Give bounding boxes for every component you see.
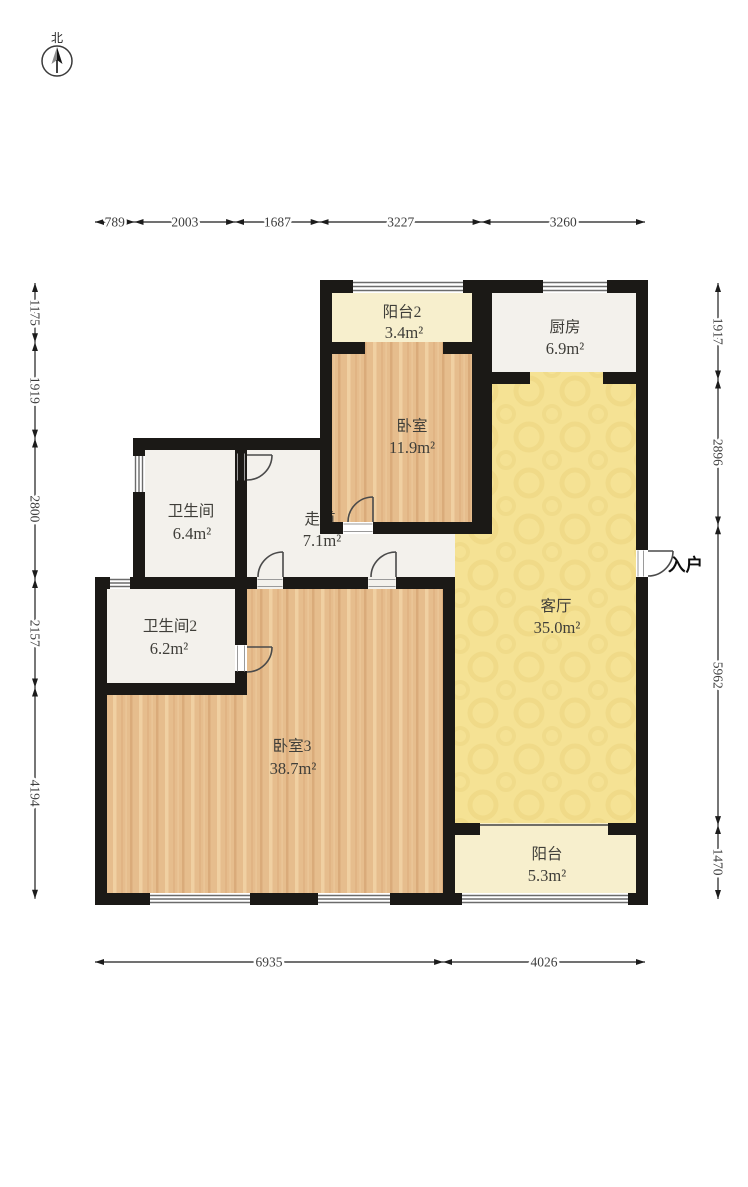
compass: 北 [42, 31, 72, 76]
room-kitchen-name: 厨房 [549, 318, 580, 336]
dimension-label: 5962 [711, 662, 726, 689]
wall-kitchen-bottom-right [603, 372, 648, 384]
wall-building-left [95, 577, 107, 905]
room-fills [107, 293, 636, 893]
dimension-label: 1175 [28, 299, 43, 326]
room-bathroom2-name: 卫生间2 [143, 617, 197, 635]
wall-balcony2-bottom-left [320, 342, 365, 354]
wall-kitchen-bottom-left [472, 372, 530, 384]
window-balcony2-top [353, 280, 463, 293]
wall-bathroom-right [235, 438, 247, 589]
dimension-right: 1917 2896 5962 1470 [711, 283, 726, 899]
dimension-label: 1470 [711, 849, 726, 876]
room-kitchen-area: 6.9m² [546, 339, 584, 358]
compass-north-label: 北 [51, 31, 63, 45]
dimension-label: 1917 [711, 318, 726, 345]
room-balcony-area: 5.3m² [528, 866, 566, 885]
wall-bedroom3-top-a [247, 577, 257, 589]
dimension-label: 2003 [171, 215, 198, 230]
room-bedroom-area: 11.9m² [389, 438, 435, 457]
wall-bathroom2-right-upper [235, 577, 247, 645]
room-bedroom-name: 卧室 [396, 417, 427, 435]
dimension-label: 2157 [28, 620, 43, 647]
window-bathroom-left [133, 456, 145, 492]
window-bedroom3-bottom-right [318, 893, 390, 905]
room-living-name: 客厅 [540, 597, 571, 615]
wall-right-lower [636, 577, 648, 905]
room-bathroom2-area: 6.2m² [150, 639, 188, 658]
wall-bedroom-bottom-right [373, 522, 492, 534]
dimension-label: 1919 [28, 377, 43, 404]
dimension-label: 6935 [256, 955, 283, 970]
dimension-label: 2896 [711, 439, 726, 466]
dimension-label: 1687 [264, 215, 291, 230]
room-bedroom3-name: 卧室3 [273, 737, 312, 755]
window-bedroom3-bottom-left [150, 893, 250, 905]
room-balcony2-name: 阳台2 [383, 303, 422, 321]
wall-bathroom2-bottom [95, 683, 247, 695]
wall-bedroom3-right [443, 577, 455, 905]
entry-label: 入户 [668, 555, 703, 576]
dimension-label: 4194 [28, 780, 43, 807]
dimension-label: 3260 [550, 215, 577, 230]
room-living-area: 35.0m² [534, 618, 581, 637]
room-bathroom-area: 6.4m² [173, 524, 211, 543]
wall-bedroom-kitchen-divider [472, 280, 492, 534]
wall-right-upper [636, 280, 648, 550]
wall-bedroom3-top-b [283, 577, 368, 589]
floor-plan-page: 阳台2 3.4m² 厨房 6.9m² 卧室 11.9m² 卫生间 6.4m² 走… [0, 0, 748, 1187]
window-balcony-bottom [462, 893, 628, 905]
floor-plan: 阳台2 3.4m² 厨房 6.9m² 卧室 11.9m² 卫生间 6.4m² 走… [0, 0, 748, 1187]
room-bedroom3-area: 38.7m² [270, 759, 317, 778]
dimension-label: 4026 [531, 955, 558, 970]
dimension-label: 3227 [387, 215, 414, 230]
wall-balcony-divider-right [608, 823, 648, 835]
room-balcony2-area: 3.4m² [385, 323, 423, 342]
window-kitchen-top [543, 280, 607, 293]
wall-bedroom-bottom-left [320, 522, 343, 534]
wall-balcony-divider-left [455, 823, 480, 835]
wall-wing-top [133, 438, 332, 450]
dimension-left: 1175 1919 2800 2157 4194 [27, 283, 42, 899]
window-bathroom2-top [110, 577, 130, 589]
dimension-bottom: 6935 4026 [95, 955, 645, 970]
room-bathroom-name: 卫生间 [168, 502, 215, 520]
wall-bedroom-left [320, 280, 332, 534]
room-balcony-name: 阳台 [531, 845, 562, 863]
dimension-label: 2800 [27, 495, 42, 522]
wall-balcony2-bottom-right [443, 342, 492, 354]
dimension-top: 789 2003 1687 3227 3260 [95, 215, 645, 230]
dimension-label: 789 [105, 215, 126, 230]
room-bathroom2 [107, 589, 235, 683]
